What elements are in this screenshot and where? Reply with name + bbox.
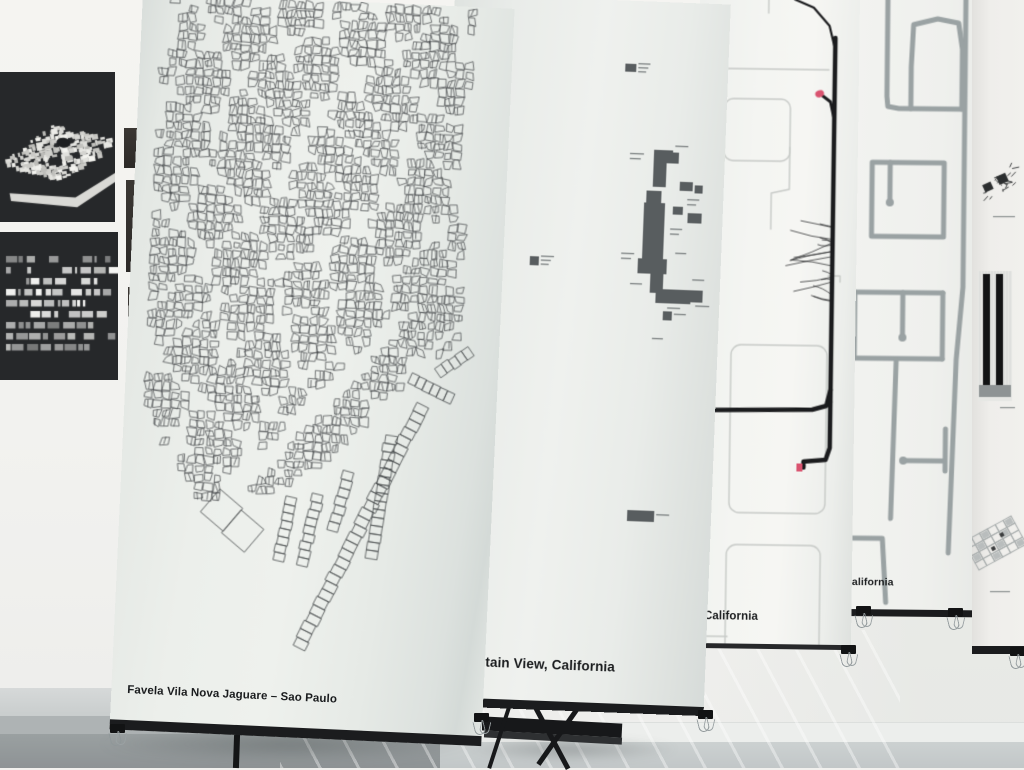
artwork-barcode-panel	[0, 232, 118, 380]
favela-map	[110, 0, 515, 746]
binder-clip	[948, 608, 963, 617]
banner-label: alifornia	[852, 576, 894, 588]
banner-favela-sao-paulo: Favela Vila Nova Jaguare – Sao Paulo	[110, 0, 515, 746]
banner-panel-right-edge	[972, 0, 1024, 654]
binder-clip	[698, 710, 713, 719]
binder-clip	[841, 645, 856, 654]
barcode-stripes-image	[0, 232, 118, 380]
relief-model-image	[0, 72, 115, 222]
panel5-graphics	[972, 0, 1024, 654]
artwork-relief-model-panel	[0, 72, 115, 222]
binder-clip	[1010, 647, 1024, 656]
binder-clip	[474, 713, 489, 722]
binder-clip	[110, 724, 125, 733]
binder-clip	[856, 606, 871, 615]
